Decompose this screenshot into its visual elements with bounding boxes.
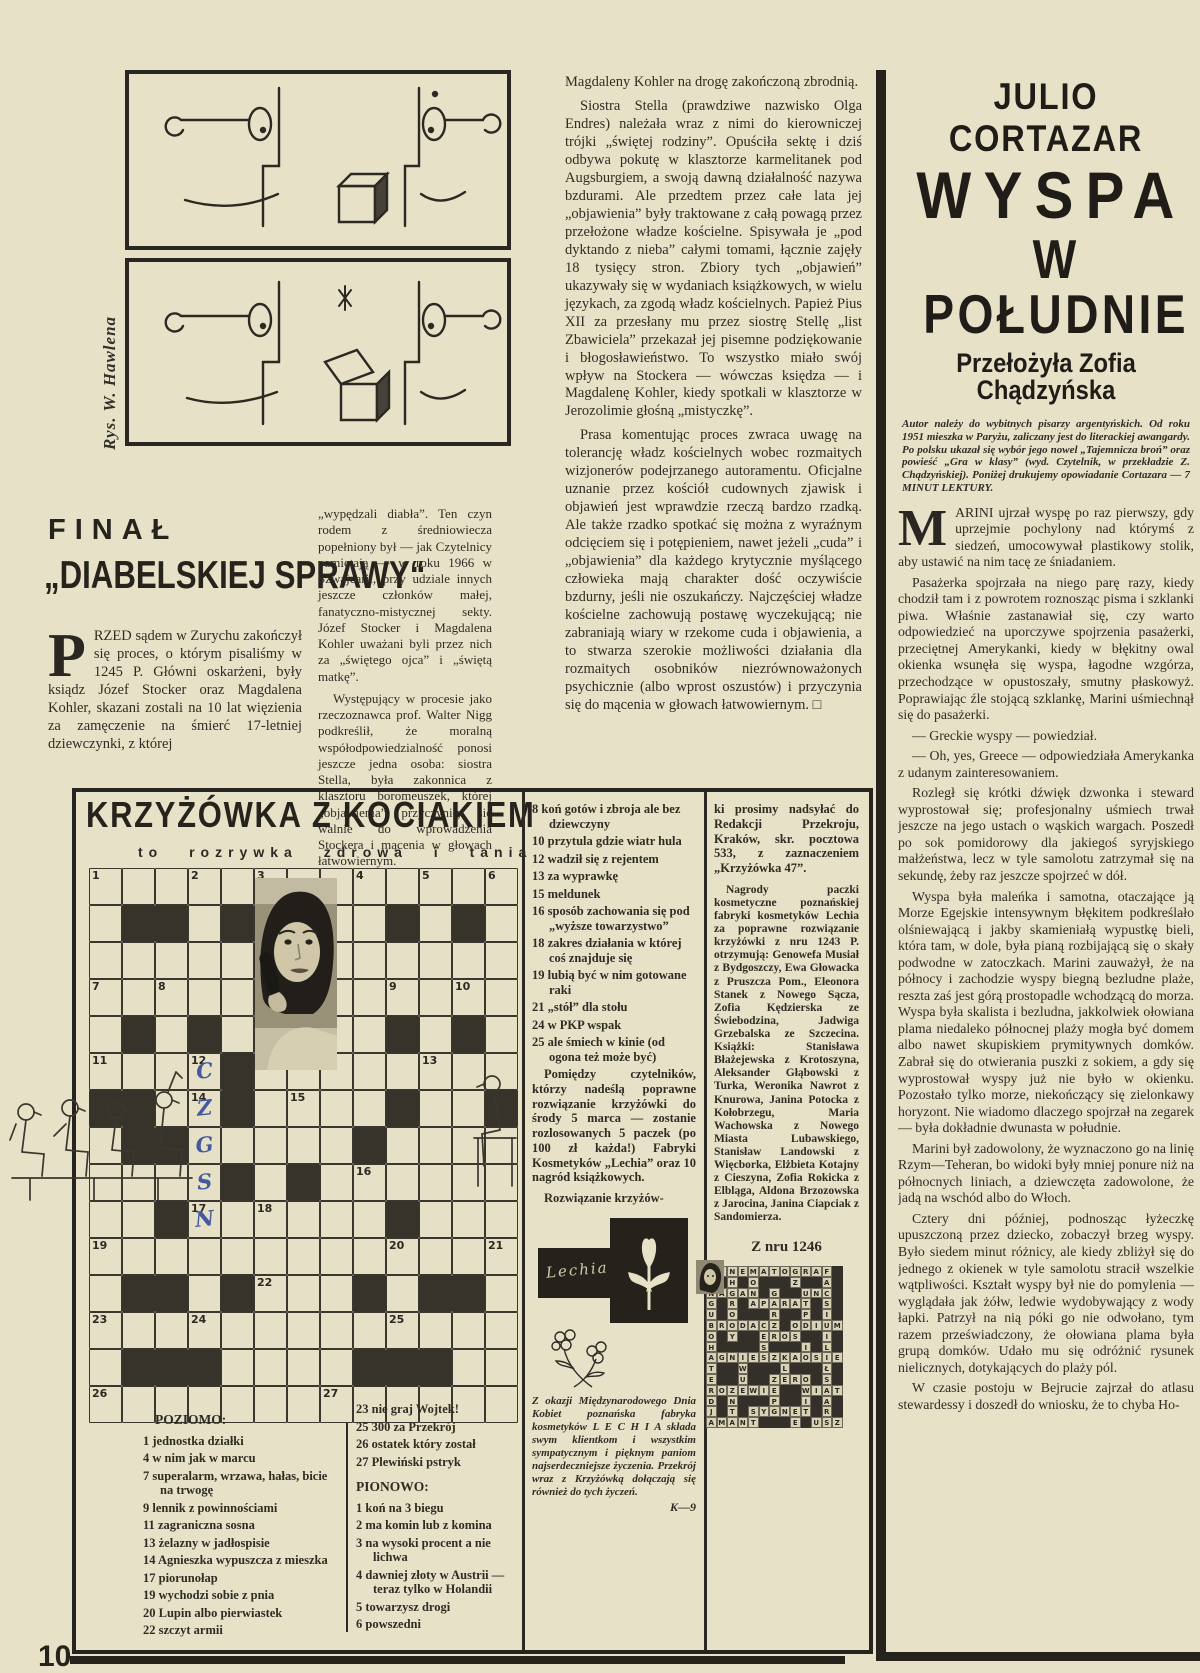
crossword-cell: 16: [353, 1164, 386, 1201]
lechia-logo-bar: Lechia: [538, 1248, 628, 1298]
crossword-cell: [419, 1090, 452, 1127]
cartoon-panel-2: [125, 258, 511, 446]
crossword-cell: [353, 979, 386, 1016]
crossword-cell: [419, 1164, 452, 1201]
solution-dark-cell: [769, 1417, 780, 1428]
solution-dark-cell: [811, 1342, 822, 1353]
solution-dark-cell: [832, 1266, 843, 1277]
crossword-cell: [386, 942, 419, 979]
crossword-cell: [320, 1238, 353, 1275]
crossword-cell: [89, 1275, 122, 1312]
crossword-cell: [419, 979, 452, 1016]
paragraph: Marini był zadowolony, że wyznaczono go …: [898, 1141, 1194, 1207]
paragraph: Rozwiązanie krzyżów-: [532, 1191, 696, 1206]
crossword-cell: 6: [485, 868, 518, 905]
crossword-cell: [353, 1016, 386, 1053]
clue-item: 7 superalarm, wrzawa, hałas, bicie na tr…: [143, 1469, 339, 1498]
solution-letter-cell: L: [780, 1363, 791, 1374]
solution-dark-cell: [801, 1363, 812, 1374]
solution-letter-cell: A: [748, 1320, 759, 1331]
crossword-cell: [419, 1016, 452, 1053]
solution-letter-cell: N: [727, 1266, 738, 1277]
solution-letter-cell: R: [769, 1309, 780, 1320]
cell-number: 21: [488, 1239, 503, 1252]
crossword-black-cell: [287, 1164, 320, 1201]
closed-box-icon: [339, 174, 387, 222]
cell-number: 27: [323, 1387, 338, 1400]
crossword-title: KRZYŻÓWKA Z KOCIAKIEM: [86, 794, 609, 836]
crossword-cell: [485, 942, 518, 979]
solution-dark-cell: [769, 1342, 780, 1353]
crossword-cell: 13: [419, 1053, 452, 1090]
prize-paragraphs: Pomiędzy czytelników, którzy nadeślą pop…: [532, 1067, 696, 1206]
lechia-note: Z okazji Międzynarodowego Dnia Kobiet po…: [532, 1395, 696, 1499]
paragraph: Pomiędzy czytelników, którzy nadeślą pop…: [532, 1067, 696, 1185]
solution-dark-cell: [780, 1288, 791, 1299]
crossword-cell: [254, 1164, 287, 1201]
cell-number: 16: [356, 1165, 371, 1178]
crossword-black-cell: [122, 905, 155, 942]
solution-dark-cell: [832, 1331, 843, 1342]
crossword-cell: [485, 1312, 518, 1349]
solution-letter-cell: I: [822, 1352, 833, 1363]
crossword-cell: [386, 868, 419, 905]
crossword-cell: [485, 905, 518, 942]
clue-item: 12 wadził się z rejentem: [532, 852, 696, 867]
solution-letter-cell: T: [769, 1266, 780, 1277]
clue-item: 11 zagraniczna sosna: [143, 1518, 339, 1533]
solution-letter-cell: R: [801, 1266, 812, 1277]
crossword-cell: 17N: [188, 1201, 221, 1238]
solution-dark-cell: [738, 1331, 749, 1342]
solution-letter-cell: E: [759, 1331, 770, 1342]
crossword-cell: [452, 1201, 485, 1238]
clue-item: 21 „stół” dla stołu: [532, 1000, 696, 1015]
crossword-black-cell: [155, 905, 188, 942]
page-number: 10: [38, 1640, 71, 1673]
solution-letter-cell: P: [801, 1309, 812, 1320]
solution-dark-cell: [738, 1396, 749, 1407]
crossword-cell: [419, 942, 452, 979]
solution-dark-cell: [790, 1288, 801, 1299]
solution-dark-cell: [801, 1331, 812, 1342]
solution-dark-cell: [832, 1298, 843, 1309]
solution-letter-cell: N: [811, 1288, 822, 1299]
solution-letter-cell: L: [822, 1342, 833, 1353]
crossword-cell: [89, 905, 122, 942]
solution-letter-cell: D: [801, 1320, 812, 1331]
crossword-cell: 1: [89, 868, 122, 905]
crossword-cell: [122, 1312, 155, 1349]
solution-dark-cell: [727, 1363, 738, 1374]
solution-letter-cell: Y: [759, 1406, 770, 1417]
crossword-cell: [254, 1238, 287, 1275]
crossword-black-cell: [419, 1349, 452, 1386]
crossword-cell: [155, 868, 188, 905]
solution-dark-cell: [759, 1396, 770, 1407]
cell-number: 1: [92, 869, 100, 882]
solution-letter-cell: E: [780, 1374, 791, 1385]
solution-dark-cell: [790, 1396, 801, 1407]
crossword-cell: [122, 942, 155, 979]
clue-item: 26 ostatek który został: [356, 1437, 511, 1452]
solution-letter-cell: M: [717, 1417, 728, 1428]
footer-rule-left: [70, 1656, 845, 1664]
clues-poziomo-list: 1 jednostka działki4 w nim jak w marcu7 …: [143, 1434, 339, 1638]
clue-item: 13 żelazny w jadłospisie: [143, 1536, 339, 1551]
crossword-black-cell: [122, 1349, 155, 1386]
solution-dark-cell: [727, 1374, 738, 1385]
pionowo-heading: PIONOWO:: [356, 1479, 511, 1495]
crossword-cell: [353, 942, 386, 979]
mailing-paragraph: ki prosimy nadsyłać do Redakcji Przekroj…: [714, 802, 859, 876]
solution-letter-cell: F: [822, 1266, 833, 1277]
solution-letter-cell: E: [738, 1385, 749, 1396]
solution-letter-cell: R: [769, 1331, 780, 1342]
asterisk-icon: [339, 286, 351, 310]
solution-letter-cell: W: [748, 1385, 759, 1396]
solution-dark-cell: [748, 1374, 759, 1385]
crossword-black-cell: [452, 1275, 485, 1312]
solution-letter-cell: Z: [832, 1417, 843, 1428]
solution-dark-cell: [790, 1385, 801, 1396]
crossword-cell: [386, 1053, 419, 1090]
crossword-cell: [386, 1275, 419, 1312]
open-box-icon: [325, 350, 389, 420]
crossword-cell: [221, 1016, 254, 1053]
crossword-cell: [122, 1238, 155, 1275]
winners-paragraph: Nagrody paczki kosmetyczne poznańskiej f…: [714, 884, 859, 1225]
cartoon-credit: Rys. W. Hawlena: [100, 275, 120, 450]
solution-letter-cell: S: [759, 1342, 770, 1353]
cell-number: 26: [92, 1387, 107, 1400]
solution-letter-cell: A: [822, 1385, 833, 1396]
solution-dark-cell: [738, 1406, 749, 1417]
solution-dark-cell: [811, 1374, 822, 1385]
paragraph: Magdaleny Kohler na drogę zakończoną zbr…: [565, 74, 862, 92]
cell-number: 4: [356, 869, 364, 882]
solution-letter-cell: I: [759, 1385, 770, 1396]
solution-dark-cell: [832, 1406, 843, 1417]
cortazar-translator: Przełożyła Zofia Chądzyńska: [898, 350, 1194, 404]
solution-dark-cell: [832, 1342, 843, 1353]
clues-middle-column: 8 koń gotów i zbroja ale bez dziewczyny1…: [532, 802, 696, 1514]
solution-letter-cell: T: [832, 1385, 843, 1396]
solution-letter-cell: O: [727, 1320, 738, 1331]
crossword-cell: [485, 1016, 518, 1053]
solution-dark-cell: [801, 1277, 812, 1288]
crossword-cell: 15: [287, 1090, 320, 1127]
solution-letter-cell: R: [717, 1320, 728, 1331]
paragraph: Cztery dni później, podnosząc łyżeczkę u…: [898, 1211, 1194, 1376]
crossword-cell: [287, 1349, 320, 1386]
crossword-cell: [221, 1127, 254, 1164]
solution-letter-cell: I: [822, 1309, 833, 1320]
solution-letter-cell: T: [801, 1406, 812, 1417]
solution-letter-cell: B: [706, 1320, 717, 1331]
solution-dark-cell: [717, 1342, 728, 1353]
cartoon-panel-1-drawing: [129, 74, 507, 246]
cortazar-column: JULIO CORTAZAR WYSPA W POŁUDNIE Przełoży…: [898, 76, 1194, 1648]
crossword-cell: [221, 979, 254, 1016]
solution-dark-cell: [801, 1417, 812, 1428]
crossword-black-cell: [386, 1201, 419, 1238]
solution-dark-cell: [811, 1363, 822, 1374]
clues-pionowo-list: 1 koń na 3 biegu2 ma komin lub z komina3…: [356, 1501, 511, 1632]
solution-dark-cell: [759, 1277, 770, 1288]
crossword-black-cell: [221, 905, 254, 942]
clue-divider-2: [704, 792, 707, 1650]
solution-dark-cell: [717, 1396, 728, 1407]
crossword-black-cell: [452, 905, 485, 942]
solution-dark-cell: [759, 1288, 770, 1299]
crossword-cell: [320, 1201, 353, 1238]
solution-letter-cell: O: [790, 1320, 801, 1331]
cortazar-title-line1: WYSPA: [898, 162, 1194, 228]
crossword-black-cell: [353, 1127, 386, 1164]
solution-letter-cell: N: [727, 1352, 738, 1363]
crossword-black-cell: [353, 1349, 386, 1386]
solution-dark-cell: [832, 1363, 843, 1374]
crossword-cell: [221, 942, 254, 979]
paragraph: Pasażerka spojrzała na niego parę razy, …: [898, 575, 1194, 724]
cortazar-author: JULIO CORTAZAR: [898, 76, 1194, 160]
solution-letter-cell: N: [738, 1417, 749, 1428]
solution-letter-cell: A: [748, 1298, 759, 1309]
solution-dark-cell: [780, 1385, 791, 1396]
solution-dark-cell: [717, 1406, 728, 1417]
solution-dark-cell: [769, 1277, 780, 1288]
clue-item: 10 przytula gdzie wiatr hula: [532, 834, 696, 849]
solution-dark-cell: [738, 1298, 749, 1309]
crossword-cell: [221, 1312, 254, 1349]
clue-item: 24 w PKP wspak: [532, 1018, 696, 1033]
solution-dark-cell: [759, 1374, 770, 1385]
solution-letter-cell: A: [811, 1266, 822, 1277]
crossword-black-cell: [221, 1275, 254, 1312]
solution-letter-cell: Z: [790, 1277, 801, 1288]
solution-letter-cell: Y: [727, 1331, 738, 1342]
cell-number: 19: [92, 1239, 107, 1252]
finale-kicker: FINAŁ: [48, 514, 178, 547]
clue-item: 15 meldunek: [532, 887, 696, 902]
solution-letter-cell: S: [790, 1331, 801, 1342]
paragraph: — Greckie wyspy — powiedział.: [898, 728, 1194, 745]
crossword-cell: [452, 1349, 485, 1386]
crossword-black-cell: [188, 1349, 221, 1386]
paragraph: Wyspa była maleńka i samotna, otaczające…: [898, 889, 1194, 1137]
solution-letter-cell: T: [727, 1406, 738, 1417]
solution-dark-cell: [717, 1363, 728, 1374]
solution-letter-cell: U: [706, 1309, 717, 1320]
crossword-cell: 8: [155, 979, 188, 1016]
crossword-cell: [320, 1090, 353, 1127]
crossword-black-cell: [155, 1201, 188, 1238]
crossword-cell: [221, 1201, 254, 1238]
solution-letter-cell: I: [801, 1396, 812, 1407]
clue-item: 4 w nim jak w marcu: [143, 1451, 339, 1466]
solution-letter-cell: U: [801, 1288, 812, 1299]
solution-dark-cell: [748, 1363, 759, 1374]
solution-letter-cell: D: [706, 1396, 717, 1407]
clue-item: 1 koń na 3 biegu: [356, 1501, 511, 1516]
solution-letter-cell: S: [759, 1352, 770, 1363]
solution-letter-cell: C: [822, 1288, 833, 1299]
cortazar-paragraphs: Pasażerka spojrzała na niego parę razy, …: [898, 575, 1194, 1414]
crossword-cell: [188, 979, 221, 1016]
clue-item: 20 Lupin albo pierwiastek: [143, 1606, 339, 1621]
solution-letter-cell: S: [822, 1298, 833, 1309]
crossword-cell: [452, 868, 485, 905]
solution-letter-cell: Z: [769, 1320, 780, 1331]
crossword-cell: [221, 1349, 254, 1386]
solution-letter-cell: A: [706, 1417, 717, 1428]
clues-middle-list: 8 koń gotów i zbroja ale bez dziewczyny1…: [532, 802, 696, 1064]
cell-number: 6: [488, 869, 496, 882]
solution-letter-cell: Ł: [822, 1363, 833, 1374]
solution-dark-cell: [748, 1396, 759, 1407]
crossword-black-cell: [419, 1275, 452, 1312]
solution-letter-cell: G: [727, 1288, 738, 1299]
crossword-cell: [353, 1090, 386, 1127]
solution-letter-cell: G: [706, 1298, 717, 1309]
solution-letter-cell: U: [738, 1374, 749, 1385]
solution-letter-cell: Z: [727, 1385, 738, 1396]
solution-dark-cell: [780, 1396, 791, 1407]
crossword-cell: [287, 1312, 320, 1349]
crossword-cell: 4: [353, 868, 386, 905]
crossword-cell: [485, 1349, 518, 1386]
crossword-black-cell: [155, 1349, 188, 1386]
clue-item: 19 lubią być w nim gotowane raki: [532, 968, 696, 997]
crossword-subtitle: to rozrywka zdrowa i tania: [138, 844, 532, 860]
solution-letter-cell: I: [811, 1385, 822, 1396]
solution-letter-cell: T: [706, 1363, 717, 1374]
solution-letter-cell: A: [769, 1298, 780, 1309]
crossword-cell: [155, 1312, 188, 1349]
crossword-cell: [188, 905, 221, 942]
solution-letter-cell: E: [738, 1266, 749, 1277]
solution-letter-cell: P: [769, 1396, 780, 1407]
crossword-cell: 20: [386, 1238, 419, 1275]
solution-letter-cell: G: [717, 1352, 728, 1363]
solution-dark-cell: [759, 1363, 770, 1374]
crossword-cell: [155, 942, 188, 979]
cell-number: 9: [389, 980, 397, 993]
cortazar-intro: Autor należy do wybitnych pisarzy argent…: [902, 418, 1190, 495]
cell-number: 13: [422, 1054, 437, 1067]
solution-dark-cell: [811, 1277, 822, 1288]
paragraph: Rozległ się krótki dźwięk dzwonka i stew…: [898, 785, 1194, 884]
solution-letter-cell: G: [769, 1406, 780, 1417]
poziomo-heading: POZIOMO:: [155, 1412, 339, 1428]
solution-letter-cell: T: [801, 1298, 812, 1309]
crossword-cell: [419, 1312, 452, 1349]
cortazar-body: M ARINI ujrzał wyspę po raz pierwszy, gd…: [898, 505, 1194, 1414]
solution-letter-cell: R: [790, 1374, 801, 1385]
solution-letter-cell: G: [769, 1288, 780, 1299]
cortazar-dropcap: M: [898, 505, 955, 550]
solution-dark-cell: [832, 1288, 843, 1299]
solution-dark-cell: [738, 1277, 749, 1288]
clue-item: 13 za wyprawkę: [532, 869, 696, 884]
crossword-cell: 5: [419, 868, 452, 905]
solution-letter-cell: O: [706, 1331, 717, 1342]
crossword-cell: [221, 1238, 254, 1275]
solution-letter-cell: U: [822, 1320, 833, 1331]
solution-letter-cell: G: [790, 1266, 801, 1277]
crossword-cell: 25: [386, 1312, 419, 1349]
paragraph: W czasie postoju w Bejrucie zajrzał do a…: [898, 1380, 1194, 1413]
cortazar-first-paragraph: M ARINI ujrzał wyspę po raz pierwszy, gd…: [898, 505, 1194, 571]
solution-letter-cell: W: [738, 1363, 749, 1374]
solution-letter-cell: P: [759, 1298, 770, 1309]
crossword-cell: [287, 1275, 320, 1312]
solution-letter-cell: M: [832, 1320, 843, 1331]
solution-letter-cell: E: [832, 1352, 843, 1363]
crossword-cell: [353, 1053, 386, 1090]
solution-letter-cell: J: [706, 1406, 717, 1417]
solution-dark-cell: [748, 1331, 759, 1342]
solution-letter-cell: R: [706, 1385, 717, 1396]
cell-number: 22: [257, 1276, 272, 1289]
cartoon-panel-1: [125, 70, 511, 250]
clue-divider-1: [522, 792, 525, 1650]
solution-letter-cell: O: [801, 1352, 812, 1363]
crossword-cell: [485, 1275, 518, 1312]
crossword-black-cell: [386, 1090, 419, 1127]
crossword-cell: [320, 1312, 353, 1349]
cell-number: 8: [158, 980, 166, 993]
solution-dark-cell: [811, 1298, 822, 1309]
paragraph: „wypędzali diabła”. Ten czyn rodem z śre…: [318, 506, 492, 685]
crossword-cell: [122, 1201, 155, 1238]
solution-dark-cell: [748, 1342, 759, 1353]
cell-number: 7: [92, 980, 100, 993]
solution-letter-cell: I: [811, 1320, 822, 1331]
crossword-cell: [254, 1349, 287, 1386]
solution-dark-cell: [832, 1309, 843, 1320]
clue-item: 23 nie graj Wojtek!: [356, 1402, 511, 1417]
solution-letter-cell: A: [738, 1288, 749, 1299]
crossword-cell: 23: [89, 1312, 122, 1349]
solution-letter-cell: D: [738, 1320, 749, 1331]
solution-dark-cell: [748, 1309, 759, 1320]
crossword-cell: 10: [452, 979, 485, 1016]
lechia-logo-script: Lechia: [545, 1259, 609, 1282]
middle-column: Magdaleny Kohler na drogę zakończoną zbr…: [565, 74, 862, 721]
clue-item: 1 jednostka działki: [143, 1434, 339, 1449]
solution-letter-cell: S: [822, 1374, 833, 1385]
solution-letter-cell: E: [790, 1406, 801, 1417]
solution-letter-cell: N: [780, 1406, 791, 1417]
flower-doodle: [534, 1325, 626, 1391]
solution-dark-cell: [717, 1331, 728, 1342]
crossword-cell: [287, 1201, 320, 1238]
solution-dark-cell: [811, 1309, 822, 1320]
solution-dark-cell: [717, 1374, 728, 1385]
crossword-cell: 2: [188, 868, 221, 905]
kociak-photo: [255, 878, 337, 1070]
crossword-cell: [155, 1238, 188, 1275]
crossword-cell: [89, 1349, 122, 1386]
crossword-cell: 18: [254, 1201, 287, 1238]
solution-letter-cell: A: [706, 1352, 717, 1363]
solution-letter-cell: A: [822, 1277, 833, 1288]
solution-dark-cell: [717, 1309, 728, 1320]
crossword-black-cell: [386, 1016, 419, 1053]
crossword-cell: [254, 1090, 287, 1127]
